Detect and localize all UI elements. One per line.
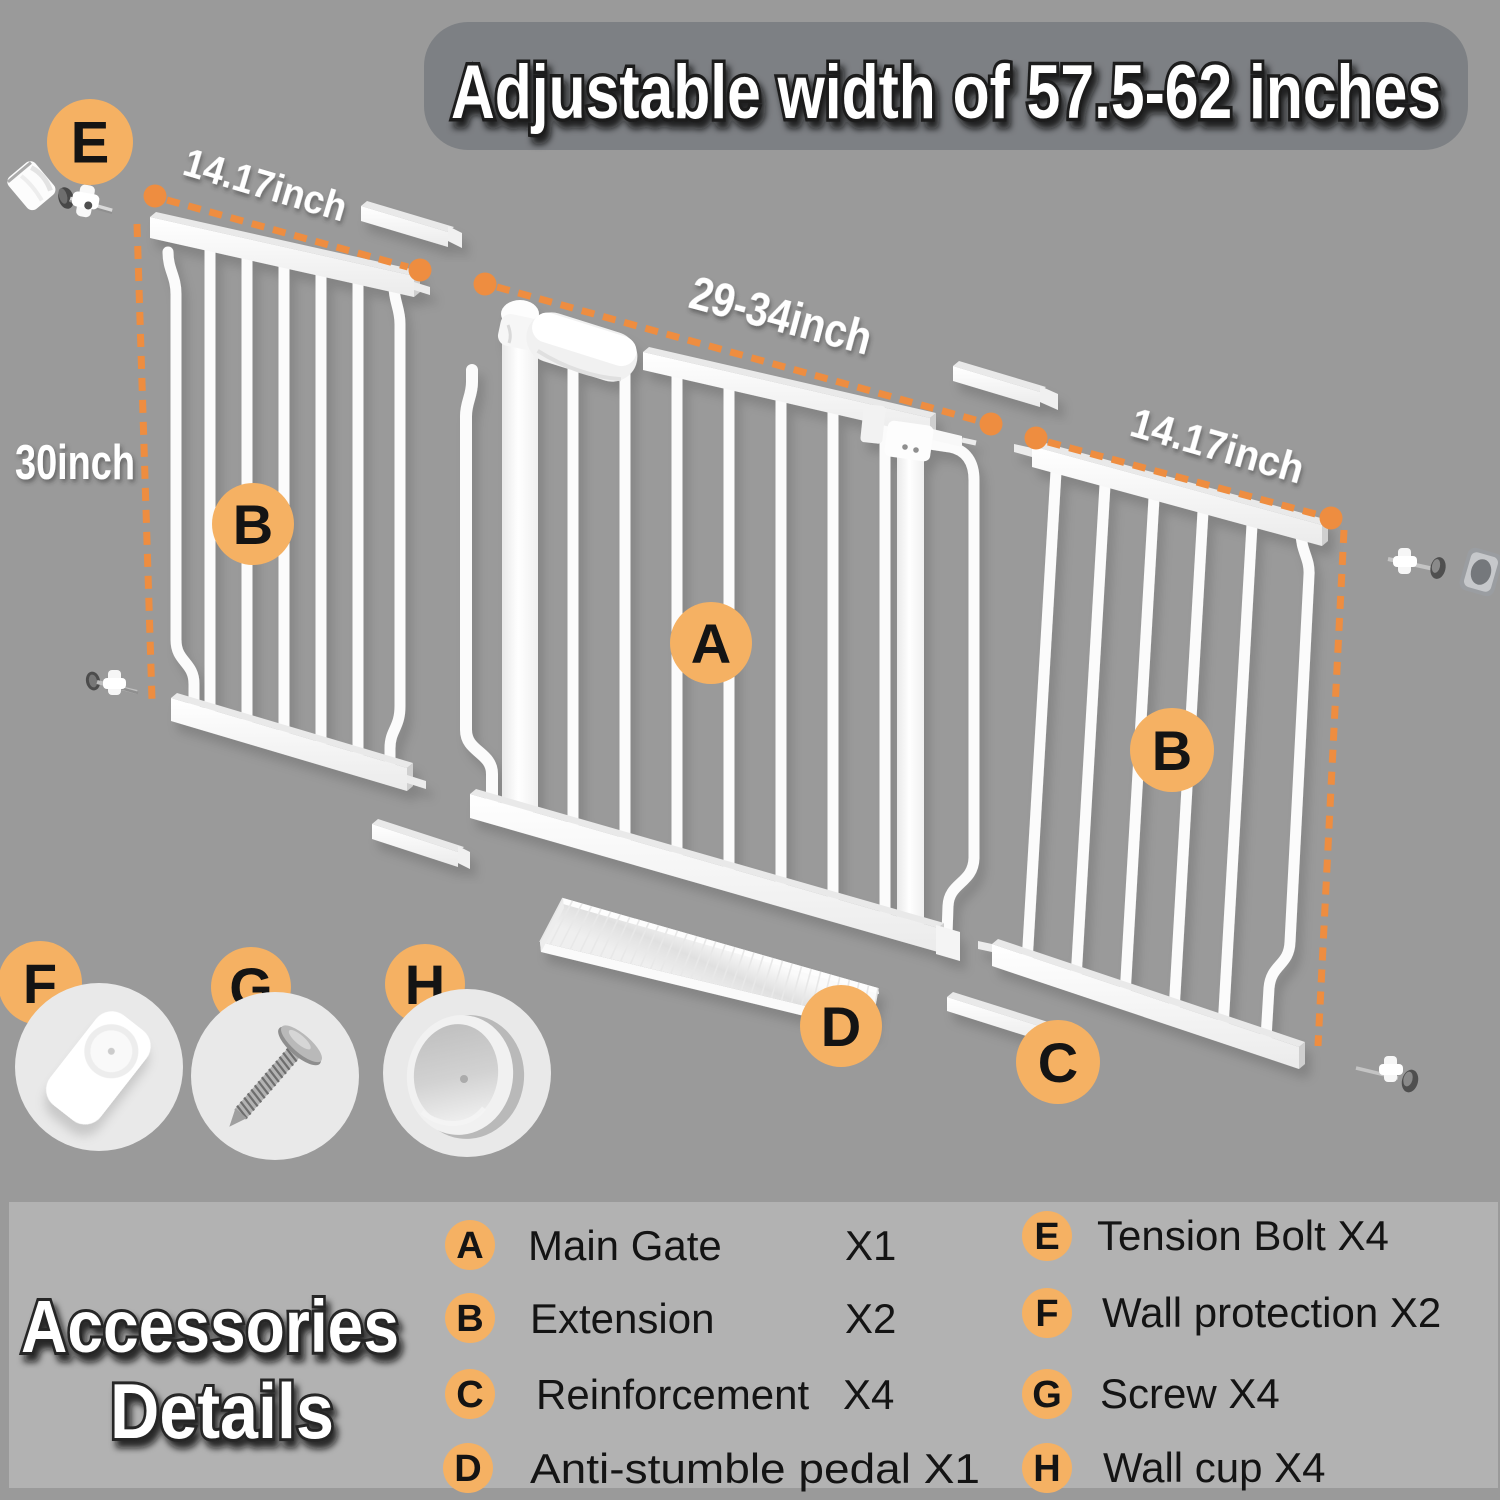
svg-text:Adjustable width of 57.5-62 in: Adjustable width of 57.5-62 inches bbox=[451, 50, 1441, 135]
svg-text:Details: Details bbox=[110, 1367, 334, 1455]
svg-text:D: D bbox=[821, 995, 861, 1058]
svg-text:Extension: Extension bbox=[530, 1295, 714, 1342]
svg-text:Accessories: Accessories bbox=[21, 1285, 399, 1368]
svg-text:Wall protection X2: Wall protection X2 bbox=[1102, 1289, 1441, 1336]
svg-text:F: F bbox=[1035, 1293, 1058, 1335]
svg-text:Main Gate: Main Gate bbox=[528, 1222, 722, 1269]
svg-text:B: B bbox=[1152, 719, 1192, 782]
svg-text:X2: X2 bbox=[845, 1295, 896, 1342]
svg-text:X1: X1 bbox=[845, 1222, 896, 1269]
svg-text:C: C bbox=[456, 1374, 483, 1416]
svg-text:G: G bbox=[1032, 1374, 1062, 1416]
svg-text:Wall cup X4: Wall cup X4 bbox=[1103, 1444, 1326, 1491]
svg-text:E: E bbox=[71, 111, 110, 176]
svg-text:X4: X4 bbox=[843, 1371, 894, 1418]
svg-text:Anti-stumble pedal X1: Anti-stumble pedal X1 bbox=[530, 1445, 980, 1492]
svg-text:H: H bbox=[1033, 1448, 1060, 1490]
svg-text:B: B bbox=[233, 493, 273, 556]
svg-text:D: D bbox=[454, 1448, 481, 1490]
svg-text:Tension Bolt X4: Tension Bolt X4 bbox=[1097, 1212, 1389, 1259]
svg-text:Reinforcement: Reinforcement bbox=[536, 1371, 809, 1418]
svg-text:30inch: 30inch bbox=[15, 436, 135, 490]
svg-text:A: A bbox=[691, 612, 731, 675]
svg-text:Screw X4: Screw X4 bbox=[1100, 1370, 1280, 1417]
svg-text:B: B bbox=[456, 1298, 483, 1340]
svg-text:C: C bbox=[1038, 1031, 1078, 1094]
svg-text:A: A bbox=[456, 1225, 483, 1267]
svg-text:E: E bbox=[1034, 1216, 1059, 1258]
